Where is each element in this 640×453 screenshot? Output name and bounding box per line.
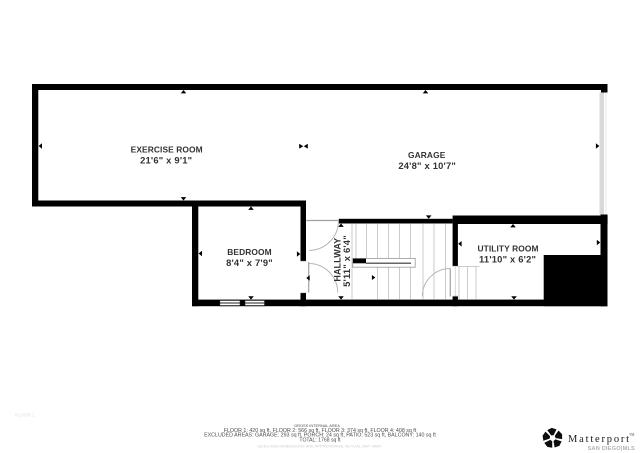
svg-text:Matterport: Matterport (568, 434, 631, 445)
svg-text:8'4" x 7'9": 8'4" x 7'9" (226, 257, 273, 268)
svg-text:BEDROOM: BEDROOM (227, 247, 271, 257)
svg-text:5'11" x 6'4": 5'11" x 6'4" (341, 235, 352, 287)
svg-text:SAN DIEGO|MLS: SAN DIEGO|MLS (588, 446, 635, 452)
svg-text:24'8" x 10'7": 24'8" x 10'7" (398, 160, 456, 171)
svg-text:UTILITY ROOM: UTILITY ROOM (477, 244, 538, 254)
svg-text:11'10" x 6'2": 11'10" x 6'2" (479, 254, 536, 265)
svg-text:GARAGE: GARAGE (408, 150, 446, 160)
svg-text:GROSS INTERNAL AREA: GROSS INTERNAL AREA (294, 423, 340, 428)
svg-text:FLOOR 1: FLOOR 1 (15, 413, 35, 418)
svg-text:21'6" x 9'1": 21'6" x 9'1" (140, 154, 192, 165)
svg-text:TM: TM (629, 433, 635, 437)
svg-text:EXERCISE ROOM: EXERCISE ROOM (131, 145, 203, 155)
svg-text:SIZES AND DIMENSIONS ARE APPRO: SIZES AND DIMENSIONS ARE APPROXIMATE, AC… (257, 443, 382, 448)
